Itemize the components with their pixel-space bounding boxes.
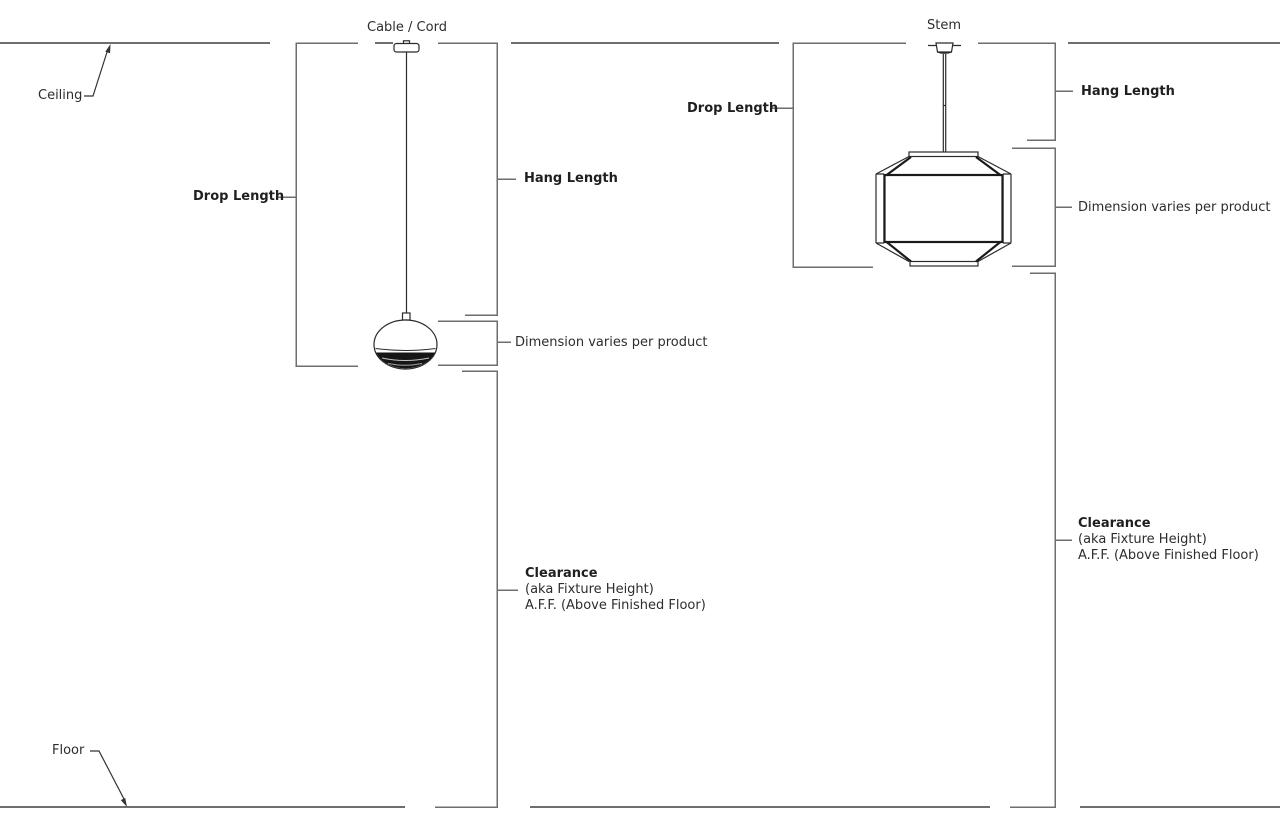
globe-connector — [403, 313, 411, 320]
lantern-top-cap — [909, 152, 978, 157]
lantern-left-rail — [876, 174, 884, 243]
lantern-pendant-fixture — [876, 43, 1011, 266]
lantern-lower-slopes — [876, 243, 1011, 262]
right-clearance-bracket — [1010, 273, 1055, 807]
right-drop-length-bracket — [793, 43, 906, 267]
stem-canopy — [936, 43, 953, 52]
left-clearance-title: Clearance — [525, 566, 706, 582]
left-dimension-bracket — [438, 321, 497, 365]
right-clearance-sub2: A.F.F. (Above Finished Floor) — [1078, 548, 1259, 564]
left-hang-length-bracket — [438, 43, 497, 315]
left-drop-length-label: Drop Length — [193, 189, 284, 205]
right-clearance-title: Clearance — [1078, 516, 1259, 532]
floor-label: Floor — [52, 743, 84, 759]
right-hang-length-bracket — [978, 43, 1055, 140]
diagram-canvas: Ceiling Floor Cable / Cord Drop Length H… — [0, 0, 1280, 826]
ceiling-label: Ceiling — [38, 88, 82, 104]
ceiling-arrow — [84, 44, 111, 96]
right-figure-brackets — [770, 43, 1073, 807]
right-suspension-label: Stem — [927, 18, 961, 34]
floor-arrow — [90, 751, 127, 807]
right-drop-length-label: Drop Length — [687, 101, 778, 117]
left-clearance-sub1: (aka Fixture Height) — [525, 582, 706, 598]
lantern-right-rail — [1003, 174, 1011, 243]
left-hang-length-label: Hang Length — [524, 171, 618, 187]
right-clearance-sub1: (aka Fixture Height) — [1078, 532, 1259, 548]
right-dimension-label: Dimension varies per product — [1078, 200, 1270, 216]
globe-pendant-fixture — [374, 41, 437, 369]
left-drop-length-bracket — [296, 43, 358, 366]
lantern-upper-slopes — [876, 157, 1011, 175]
right-hang-length-label: Hang Length — [1081, 84, 1175, 100]
lantern-bottom-cap — [910, 262, 978, 267]
lantern-shade — [885, 175, 1003, 242]
left-clearance-bracket — [435, 371, 497, 807]
left-clearance-sub2: A.F.F. (Above Finished Floor) — [525, 598, 706, 614]
left-clearance-label: Clearance (aka Fixture Height) A.F.F. (A… — [525, 566, 706, 614]
left-suspension-label: Cable / Cord — [367, 20, 447, 36]
left-figure-brackets — [277, 43, 518, 807]
right-dimension-bracket — [1012, 148, 1055, 266]
right-clearance-label: Clearance (aka Fixture Height) A.F.F. (A… — [1078, 516, 1259, 564]
stem-rod — [943, 54, 945, 152]
diagram-linework — [0, 0, 1280, 826]
cable-canopy — [394, 44, 419, 53]
left-dimension-label: Dimension varies per product — [515, 335, 707, 351]
